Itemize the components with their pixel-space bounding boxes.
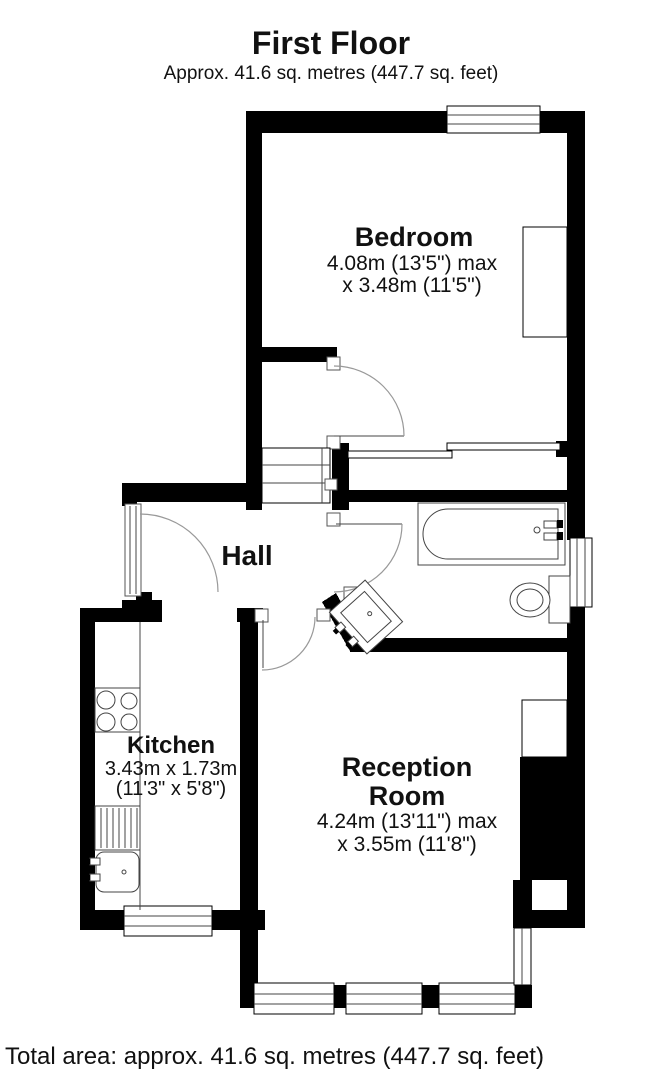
reception-window-1 [254, 983, 334, 1014]
wall-segment [349, 490, 568, 502]
wall-segment [80, 910, 128, 930]
bedroom-dimension: 4.08m (13'5") max [327, 252, 498, 275]
wall-segment [246, 111, 262, 510]
wall-segment [246, 111, 447, 133]
reception-dimension: x 3.55m (11'8") [337, 833, 476, 856]
wall-segment [332, 443, 349, 510]
chimney-breast [520, 757, 567, 880]
page-subtitle: Approx. 41.6 sq. metres (447.7 sq. feet) [164, 63, 499, 84]
side-return-window [514, 928, 531, 985]
front-door [125, 504, 218, 596]
wall-segment [122, 483, 137, 506]
wall-segment [246, 347, 337, 362]
page-title: First Floor [252, 25, 410, 61]
wall-segment [567, 605, 585, 910]
kitchen-window [124, 906, 212, 936]
wall-segment [80, 608, 95, 930]
kitchen-label: Kitchen [127, 732, 215, 759]
wardrobe [523, 227, 567, 337]
toilet-icon [510, 576, 570, 623]
total-area-label: Total area: approx. 41.6 sq. metres (447… [5, 1043, 544, 1070]
bathtub-icon [418, 503, 565, 565]
hob-icon [95, 688, 140, 732]
wall-segment [137, 483, 262, 502]
reception-door [255, 609, 330, 670]
floorplan-page: First Floor Approx. 41.6 sq. metres (447… [0, 0, 663, 1080]
reception-dimension: 4.24m (13'11") max [317, 810, 498, 833]
thin-partitions [348, 443, 560, 458]
wall-segment [513, 910, 585, 928]
bedroom-window [447, 106, 540, 133]
reception-label: Reception [342, 752, 473, 782]
stairs [262, 448, 337, 503]
draining-board-icon [95, 806, 140, 850]
kitchen-dimension: (11'3" x 5'8") [116, 778, 226, 800]
bedroom-label: Bedroom [355, 222, 474, 252]
wall-segment [513, 880, 532, 910]
kitchen-dimension: 3.43m x 1.73m [105, 758, 237, 780]
thin-partition [447, 443, 560, 450]
bathroom-window [570, 538, 592, 607]
newel-post [325, 479, 337, 490]
reception-label: Room [369, 781, 446, 811]
floorplan-drawing: First Floor Approx. 41.6 sq. metres (447… [0, 0, 663, 1080]
reception-window-3 [439, 983, 515, 1014]
thin-partition [348, 451, 452, 458]
reception-window-2 [346, 983, 422, 1014]
hall-label: Hall [221, 540, 272, 571]
cupboard [522, 700, 567, 757]
wall-segment [567, 111, 585, 540]
bedroom-door [327, 357, 404, 449]
wall-segment [240, 608, 258, 1008]
bedroom-dimension: x 3.48m (11'5") [342, 274, 481, 297]
